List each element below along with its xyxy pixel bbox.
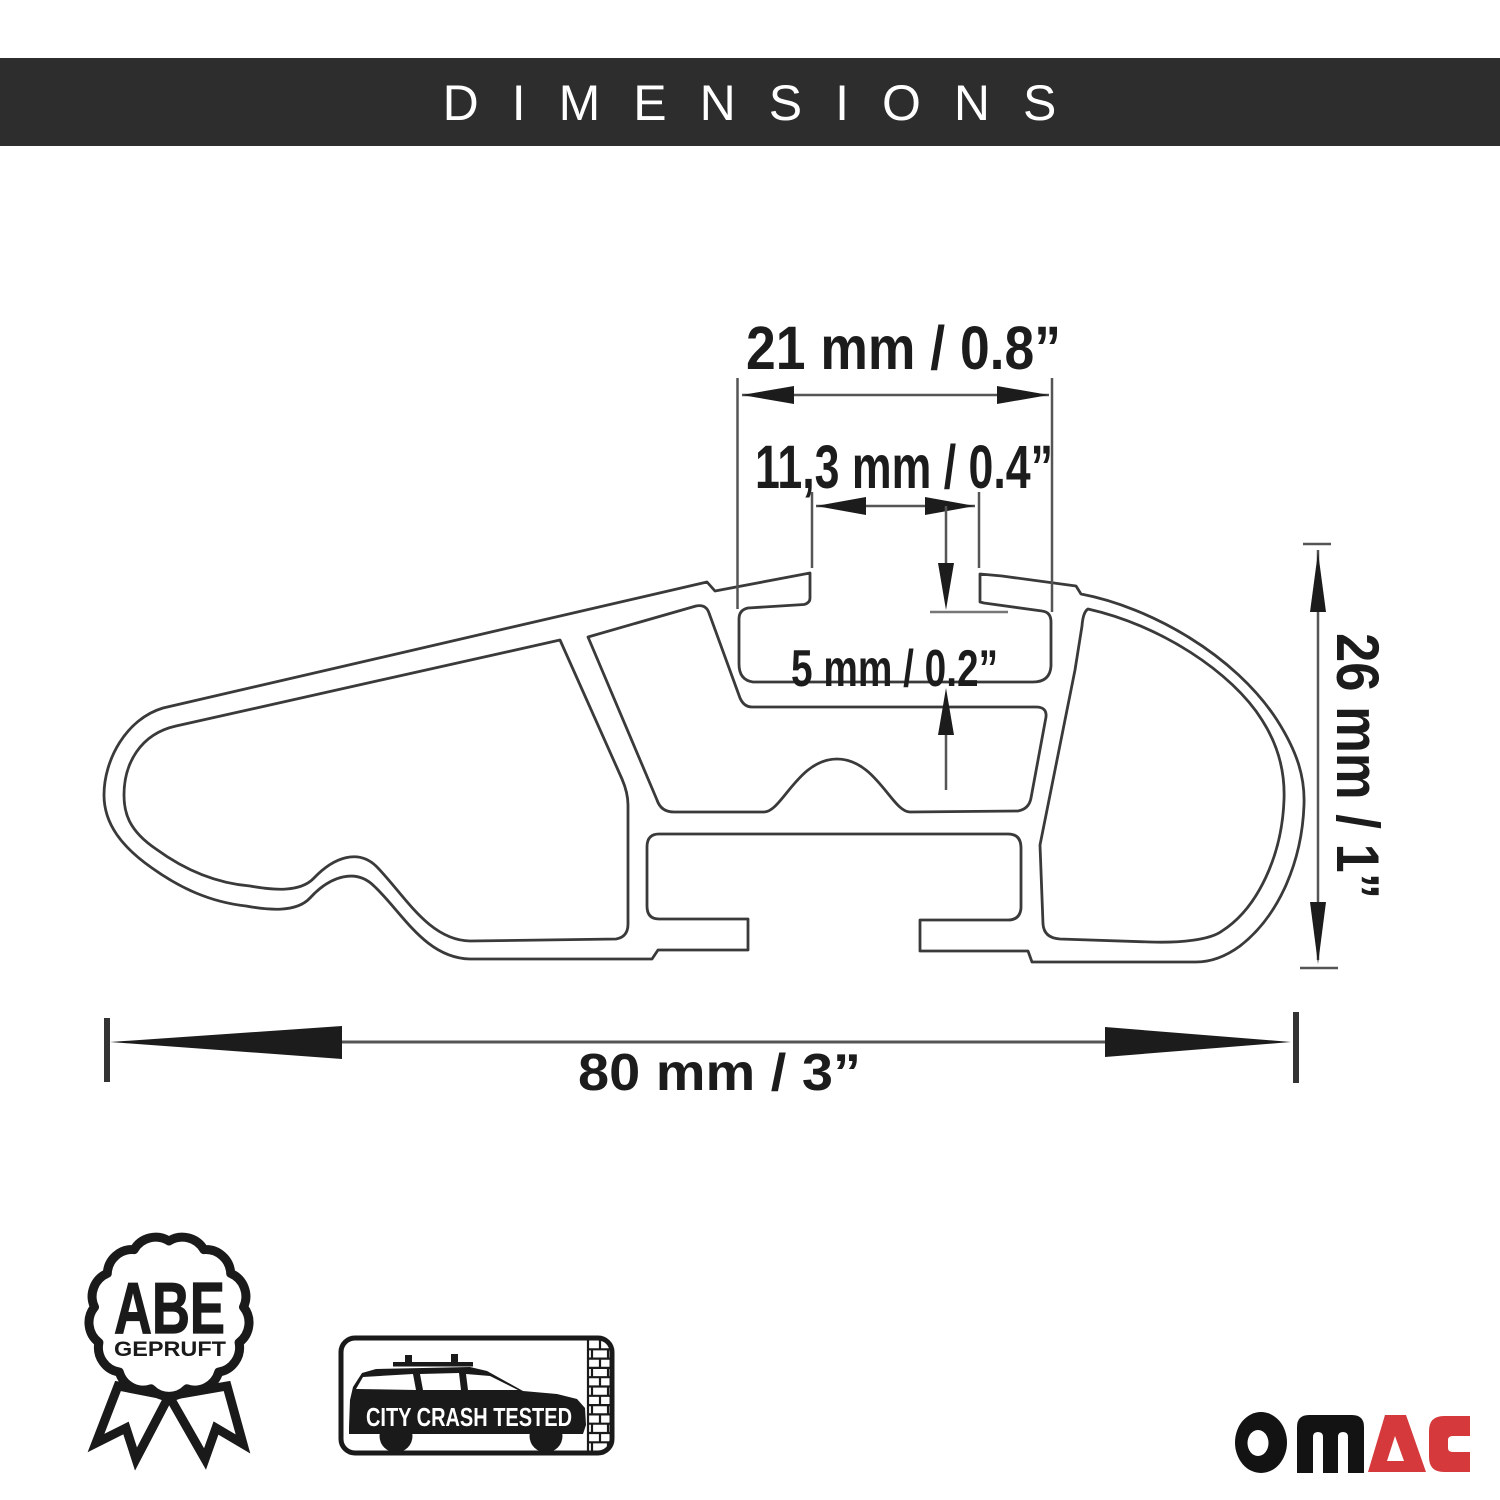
svg-text:11,3 mm / 0.4”: 11,3 mm / 0.4” <box>755 433 1053 501</box>
svg-text:GEPRUFT: GEPRUFT <box>114 1338 226 1361</box>
svg-text:CITY CRASH TESTED: CITY CRASH TESTED <box>366 1402 572 1432</box>
svg-text:21 mm / 0.8”: 21 mm / 0.8” <box>746 314 1061 382</box>
svg-text:DIMENSIONS: DIMENSIONS <box>443 75 1090 131</box>
svg-text:80 mm / 3”: 80 mm / 3” <box>578 1044 861 1102</box>
svg-text:26 mm / 1”: 26 mm / 1” <box>1324 633 1391 899</box>
svg-text:ABE: ABE <box>114 1269 225 1349</box>
svg-text:5 mm / 0.2”: 5 mm / 0.2” <box>791 640 998 698</box>
